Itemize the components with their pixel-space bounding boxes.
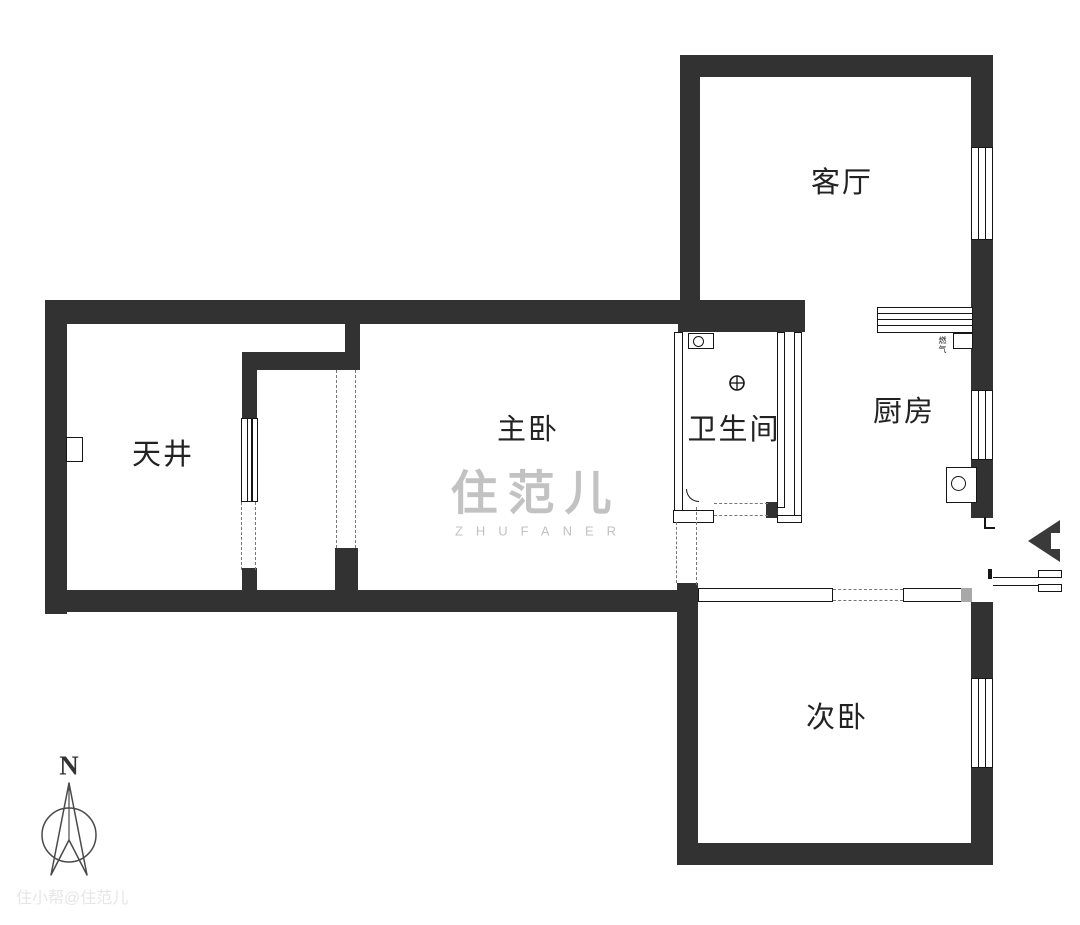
lightwell-window	[241, 418, 258, 502]
entry-arrow-icon	[1024, 518, 1060, 564]
wall-outer-left	[45, 300, 67, 614]
washbasin-bowl-icon	[693, 336, 704, 347]
secondary-top-partition-b	[903, 588, 963, 602]
watermark-logo: 住范儿	[451, 455, 622, 524]
room-label-living: 客厅	[811, 159, 873, 201]
wall-master-left-stub	[335, 548, 358, 592]
kitchen-wall-notch	[984, 517, 995, 529]
wall-secondary-right-upper	[971, 602, 993, 678]
entry-door-hinge	[988, 569, 992, 579]
wall-corridor-top	[243, 352, 360, 370]
floor-plan: 燃气 客厅 厨房 卫生间 主卧 次卧 天井 住范儿 ZHUFANER N 住小帮…	[0, 0, 1080, 925]
bathroom-door-dash-1	[714, 503, 768, 504]
lightwell-wall-box	[66, 437, 83, 462]
floor-drain-icon	[728, 374, 746, 392]
room-label-secondary: 次卧	[806, 694, 868, 736]
bathroom-bottom-stub	[673, 510, 714, 523]
secondary-top-partition-a	[698, 588, 833, 602]
wall-living-left	[680, 55, 700, 332]
wall-corridor-connector	[345, 318, 360, 356]
master-opening-dash-1	[336, 370, 337, 548]
kitchen-window	[971, 390, 993, 460]
bathroom-left-wall	[674, 332, 683, 518]
corridor-opening-dash-1	[241, 502, 242, 570]
corridor-opening-dash-2	[255, 502, 256, 570]
room-label-master: 主卧	[497, 406, 559, 448]
gas-meter-icon	[953, 333, 973, 349]
hall-opening-dash-2	[696, 507, 697, 585]
entry-door-handle-top	[1038, 570, 1062, 578]
secondary-bedroom-window	[971, 678, 993, 768]
wall-secondary-left	[677, 583, 698, 865]
kitchen-appliance-icon	[946, 467, 977, 503]
wall-lightwell-right-stub	[242, 568, 257, 592]
secondary-door-dash-2	[833, 600, 903, 601]
wall-bathroom-top	[678, 300, 805, 332]
gas-meter-label: 燃气	[938, 336, 946, 354]
secondary-door-dash-1	[833, 589, 903, 590]
room-label-kitchen: 厨房	[873, 388, 935, 430]
wall-right-upper	[971, 55, 993, 147]
hall-opening-dash-1	[676, 522, 677, 583]
watermark-latin: ZHUFANER	[455, 524, 629, 539]
room-label-lightwell: 天井	[132, 431, 194, 473]
wall-outer-bottom-left	[45, 590, 698, 612]
compass-rose-icon	[39, 780, 99, 878]
watermark-corner: 住小帮@住范儿	[16, 884, 128, 908]
bathroom-right-wall-outer	[794, 332, 802, 522]
compass-north-label: N	[59, 751, 79, 782]
entry-door-handle-bottom	[1038, 584, 1062, 592]
living-room-window	[971, 147, 993, 240]
kitchen-appliance-burner-icon	[951, 476, 966, 491]
wall-secondary-right-lower	[971, 768, 993, 843]
wall-lightwell-right-upper	[242, 352, 257, 418]
bathroom-door-arc	[686, 489, 699, 502]
wall-right-mid	[971, 240, 993, 390]
shaft-bottom-cap	[777, 515, 802, 523]
washbasin-icon	[688, 333, 714, 349]
kitchen-counter	[877, 307, 973, 333]
wall-secondary-bottom	[677, 843, 993, 865]
wall-living-top	[680, 55, 993, 77]
bathroom-door-dash-2	[714, 515, 768, 516]
wall-outer-top-left	[45, 300, 700, 324]
master-opening-dash-2	[355, 370, 356, 548]
room-label-bathroom: 卫生间	[687, 406, 780, 448]
secondary-partition-gray-end	[961, 588, 972, 602]
